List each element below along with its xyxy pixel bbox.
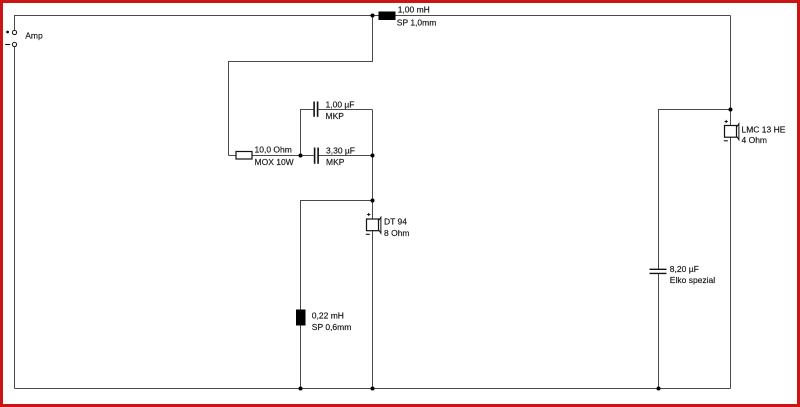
svg-text:0,22 mH: 0,22 mH bbox=[312, 311, 344, 321]
svg-text:MKP: MKP bbox=[326, 157, 345, 167]
svg-text:SP 1,0mm: SP 1,0mm bbox=[397, 17, 437, 27]
svg-text:8,20 µF: 8,20 µF bbox=[670, 264, 699, 274]
svg-text:MOX 10W: MOX 10W bbox=[255, 157, 294, 167]
svg-text:Elko spezial: Elko spezial bbox=[670, 275, 715, 285]
svg-text:SP 0,6mm: SP 0,6mm bbox=[312, 322, 352, 332]
svg-text:MKP: MKP bbox=[326, 111, 345, 121]
svg-text:1,00 mH: 1,00 mH bbox=[398, 4, 430, 14]
svg-text:10,0 Ohm: 10,0 Ohm bbox=[255, 144, 292, 154]
svg-text:Amp: Amp bbox=[25, 30, 43, 40]
svg-text:8 Ohm: 8 Ohm bbox=[384, 228, 410, 238]
svg-text:DT 94: DT 94 bbox=[384, 217, 407, 227]
svg-text:4 Ohm: 4 Ohm bbox=[742, 135, 768, 145]
svg-text:1,00 µF: 1,00 µF bbox=[326, 100, 355, 110]
svg-text:3,30 µF: 3,30 µF bbox=[326, 146, 355, 156]
svg-text:LMC 13 HE: LMC 13 HE bbox=[742, 125, 786, 135]
